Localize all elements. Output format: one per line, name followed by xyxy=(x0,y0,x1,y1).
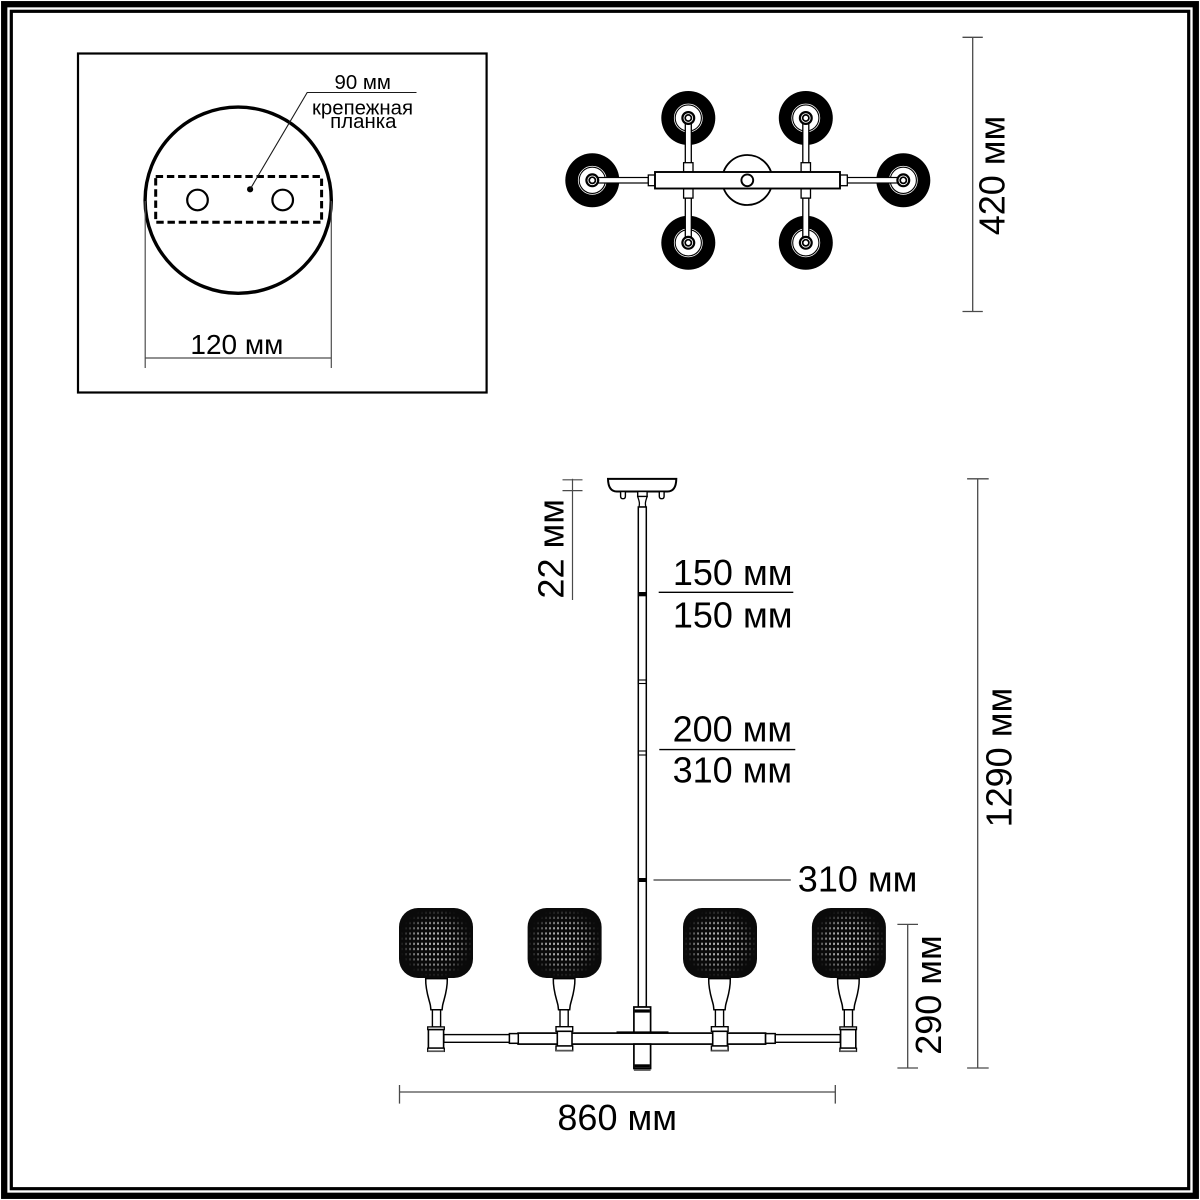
svg-text:22 мм: 22 мм xyxy=(531,499,572,599)
svg-text:планка: планка xyxy=(330,111,397,133)
svg-text:290 мм: 290 мм xyxy=(908,935,949,1055)
svg-text:860 мм: 860 мм xyxy=(557,1097,677,1138)
svg-text:120 мм: 120 мм xyxy=(190,329,283,360)
svg-text:1290 мм: 1290 мм xyxy=(978,688,1019,828)
svg-text:420 мм: 420 мм xyxy=(972,116,1013,236)
svg-text:150 мм: 150 мм xyxy=(673,552,793,593)
svg-text:150 мм: 150 мм xyxy=(673,595,793,636)
svg-text:200 мм: 200 мм xyxy=(673,708,793,749)
svg-text:90 мм: 90 мм xyxy=(335,72,391,94)
svg-text:310 мм: 310 мм xyxy=(798,858,918,899)
svg-text:310 мм: 310 мм xyxy=(673,750,793,791)
